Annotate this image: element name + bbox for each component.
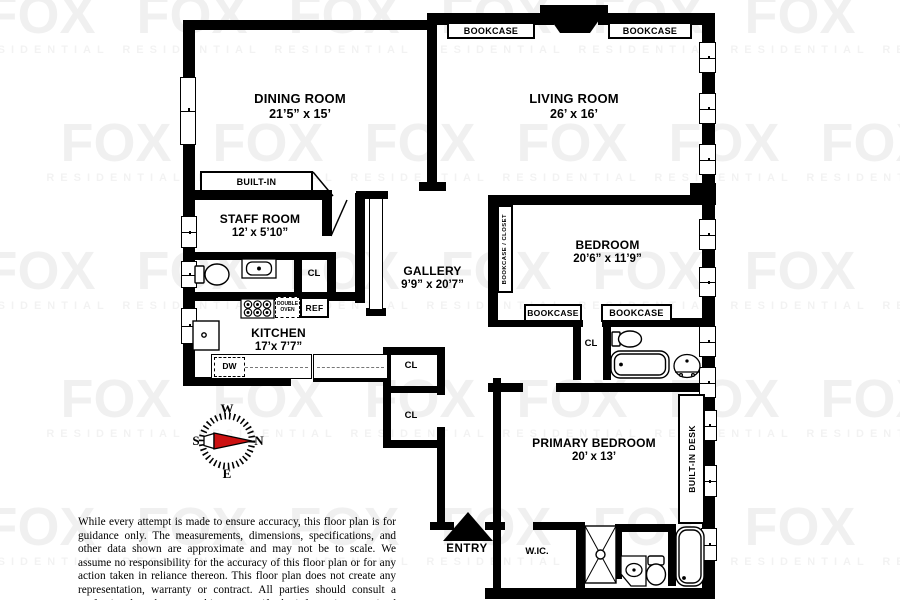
bookcase-closet-label: BOOKCASE / CLOSET [502,214,508,284]
bathtub-fixture [611,351,669,378]
bookcase-closet-box: BOOKCASE / CLOSET [497,205,513,293]
room-label-living: LIVING ROOM 26’ x 16’ [500,91,648,121]
door-swing [313,172,333,196]
entry-arrow-icon [443,512,493,541]
dw-label: DW [222,364,236,370]
built-in-desk-label: BUILT-IN DESK [687,425,697,493]
compass-south: S [189,433,203,449]
sink-fixture [242,259,276,278]
dishwasher-box: DW [214,357,245,377]
room-label-bedroom: BEDROOM 20’6” x 11’9” [540,238,675,265]
toilet-fixture [612,331,642,347]
shower-fixture [585,526,616,583]
double-oven-box: DOUBLE OVEN [275,297,300,318]
room-dims: 17’x 7’7” [216,341,341,353]
stove-fixture [241,299,274,318]
room-label-staff: STAFF ROOM 12’ x 5’10” [200,212,320,239]
room-dims: 20’6” x 11’9” [540,253,675,265]
room-dims: 21’5” x 15’ [230,107,370,121]
compass-north: N [252,433,266,449]
bookcase-label: BOOKCASE [464,26,518,36]
built-in-box: BUILT-IN [200,171,313,192]
door-swing [331,200,347,236]
room-label-gallery: GALLERY 9’9” x 20’7” [375,264,490,291]
bathtub-fixture [676,527,704,586]
room-label-dining: DINING ROOM 21’5” x 15’ [230,91,370,121]
room-name: BEDROOM [540,238,675,252]
room-dims: 26’ x 16’ [500,107,648,121]
room-name: PRIMARY BEDROOM [515,436,673,450]
compass-rose [202,416,252,466]
closet-label: CL [582,338,600,349]
room-dims: 20’ x 13’ [515,451,673,463]
closet-label: CL [305,268,323,279]
wall-notch [546,13,604,33]
sink-fixture [621,556,646,586]
bookcase-box: BOOKCASE [447,22,535,39]
double-oven-label: DOUBLE OVEN [276,302,299,313]
bookcase-box: BOOKCASE [608,22,692,39]
kitchen-counter [313,354,388,379]
room-name: DINING ROOM [230,91,370,106]
floor-plan: FOXRESIDENTIALFOXRESIDENTIALFOXRESIDENTI… [0,0,900,600]
room-name: KITCHEN [216,326,341,340]
wic-label: W.IC. [512,546,562,557]
entry-label: ENTRY [436,543,498,555]
bookcase-label: BOOKCASE [527,308,579,318]
room-label-primary: PRIMARY BEDROOM 20’ x 13’ [515,436,673,463]
room-name: STAFF ROOM [200,212,320,226]
built-in-label: BUILT-IN [237,177,277,187]
toilet-fixture [647,556,666,585]
bookcase-box: BOOKCASE [524,304,582,322]
pedestal-sink-fixture [674,355,700,378]
closet-label: CL [402,360,420,371]
refrigerator-box: REF [300,297,329,318]
bookcase-label: BOOKCASE [623,26,677,36]
built-in-desk-box: BUILT-IN DESK [678,394,705,524]
room-name: GALLERY [375,264,490,278]
room-dims: 9’9” x 20’7” [375,279,490,291]
closet-label: CL [402,410,420,421]
compass-needle-tail [204,434,214,449]
bookcase-label: BOOKCASE [609,308,663,318]
room-name: LIVING ROOM [500,91,648,106]
bookcase-box: BOOKCASE [601,304,672,322]
disclaimer-text: While every attempt is made to ensure ac… [78,516,396,600]
room-dims: 12’ x 5’10” [200,227,320,239]
ref-label: REF [306,303,324,313]
compass-east: E [220,466,234,482]
room-label-kitchen: KITCHEN 17’x 7’7” [216,326,341,353]
toilet-fixture [195,264,229,285]
compass-needle [214,433,252,449]
compass-west: W [219,401,235,417]
